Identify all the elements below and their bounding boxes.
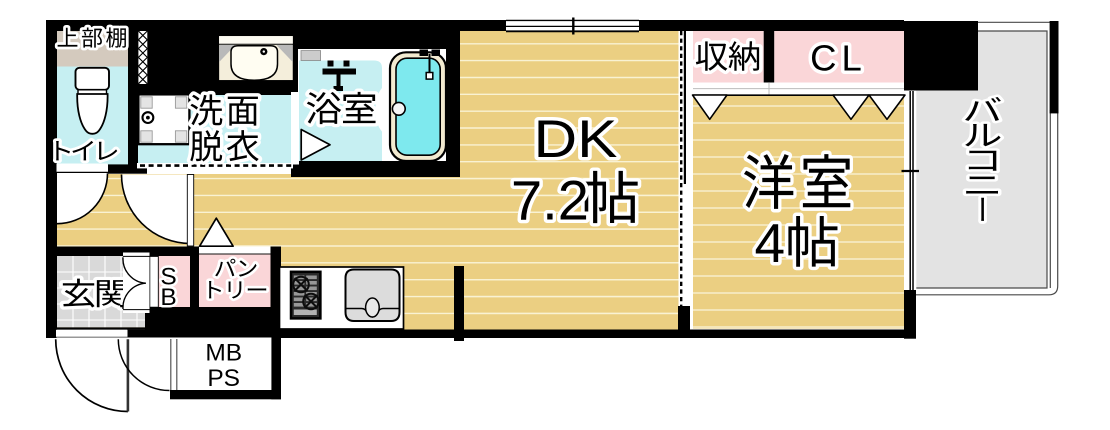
svg-text:B: B xyxy=(160,284,176,311)
svg-text:MB: MB xyxy=(205,340,242,367)
svg-text:7.2: 7.2 xyxy=(511,169,589,232)
svg-text:4: 4 xyxy=(755,212,786,274)
svg-text:CL: CL xyxy=(810,37,867,78)
svg-text:DK: DK xyxy=(534,110,618,169)
svg-text:PS: PS xyxy=(207,365,240,392)
